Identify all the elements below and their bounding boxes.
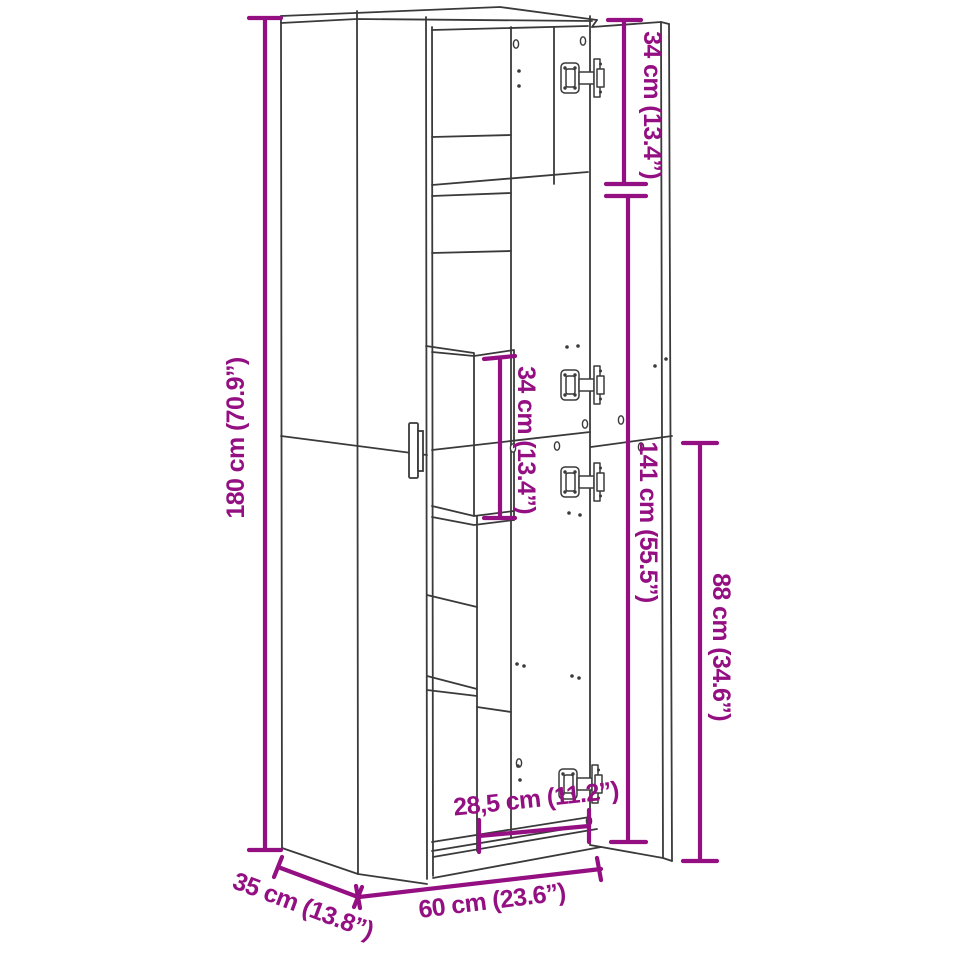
top-shelf-back-line bbox=[432, 135, 511, 137]
pin-hole bbox=[570, 674, 574, 678]
pin-hole bbox=[516, 764, 520, 768]
pin-hole bbox=[522, 664, 526, 668]
dim-label-door-section: 141 cm (55.5”) bbox=[634, 441, 662, 602]
dimension-depth: 35 cm (13.8”) bbox=[229, 857, 378, 945]
hinge-icon bbox=[561, 463, 604, 501]
interior-back-top bbox=[432, 26, 588, 30]
lower-shelf-2-thickness bbox=[427, 690, 477, 696]
pin-hole bbox=[664, 357, 668, 361]
dimension-lower-door: 88 cm (34.6”) bbox=[683, 443, 735, 861]
hinge-icon bbox=[561, 59, 604, 97]
hinges bbox=[559, 59, 604, 803]
pin-hole bbox=[576, 344, 580, 348]
dimension-width: 60 cm (23.6”) bbox=[356, 858, 601, 924]
dimension-top-compartment: 34 cm (13.4”) bbox=[606, 20, 666, 196]
hole bbox=[618, 416, 623, 424]
top-front-edge bbox=[281, 19, 592, 23]
pin-hole bbox=[577, 676, 581, 680]
lower-shelf-3 bbox=[477, 707, 511, 712]
door-handle bbox=[409, 423, 423, 478]
side-bottom-edge bbox=[282, 848, 358, 874]
cabinet-dimension-diagram: 180 cm (70.9”) 34 cm (13.4”) 141 cm (55.… bbox=[0, 0, 955, 955]
pin-hole bbox=[517, 84, 521, 88]
dim-label-height: 180 cm (70.9”) bbox=[222, 357, 250, 518]
door-top-edge bbox=[592, 22, 669, 27]
top-shelf-front bbox=[432, 172, 588, 185]
dimension-shelf-compartment: 34 cm (13.4”) bbox=[484, 356, 540, 518]
cabinet-line-art bbox=[281, 7, 672, 884]
door-thickness-edge bbox=[669, 24, 672, 861]
pin-hole bbox=[567, 511, 571, 515]
dim-label-lower-door: 88 cm (34.6”) bbox=[707, 573, 735, 721]
hole bbox=[582, 420, 587, 428]
hole bbox=[580, 37, 585, 45]
dim-label-width: 60 cm (23.6”) bbox=[417, 878, 567, 924]
upper-shelf bbox=[432, 251, 511, 253]
closed-door-edge bbox=[426, 17, 427, 879]
front-bottom-edge bbox=[358, 874, 427, 884]
top-back-edge bbox=[281, 7, 597, 20]
lower-shelf-2 bbox=[427, 676, 477, 689]
cabinet-body bbox=[281, 16, 601, 884]
cabinet-top bbox=[281, 7, 597, 27]
interior-shelves bbox=[427, 26, 588, 712]
pin-hole bbox=[578, 513, 582, 517]
front-split-line bbox=[281, 436, 427, 455]
pin-hole bbox=[515, 662, 519, 666]
dimension-door-section: 141 cm (55.5”) bbox=[611, 196, 662, 842]
lower-shelf-1 bbox=[427, 595, 477, 607]
hinge-icon bbox=[561, 366, 604, 404]
dimensions: 180 cm (70.9”) 34 cm (13.4”) 141 cm (55.… bbox=[222, 18, 735, 945]
interior-left-wall bbox=[432, 27, 433, 876]
top-shelf-thickness bbox=[432, 193, 511, 196]
dimension-line bbox=[249, 18, 281, 850]
handle-bar bbox=[409, 423, 418, 478]
pin-hole bbox=[518, 778, 522, 782]
dim-label-top-compartment: 34 cm (13.4”) bbox=[638, 31, 666, 179]
dim-label-shelf-compartment: 34 cm (13.4”) bbox=[512, 366, 540, 514]
door-bottom-edge bbox=[590, 845, 672, 861]
hole bbox=[513, 40, 518, 48]
handle-mount bbox=[418, 431, 423, 471]
pin-hole bbox=[565, 345, 569, 349]
pin-hole bbox=[517, 69, 521, 73]
pin-hole bbox=[653, 364, 657, 368]
hole bbox=[554, 442, 559, 450]
dimension-height: 180 cm (70.9”) bbox=[222, 18, 281, 850]
